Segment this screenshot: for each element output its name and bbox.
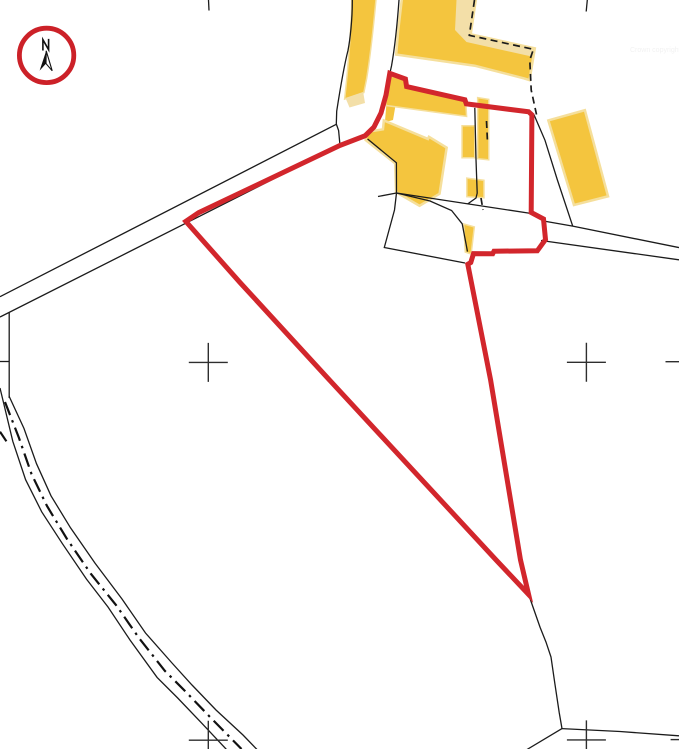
svg-text:Crown copyright: Crown copyright bbox=[630, 47, 679, 54]
